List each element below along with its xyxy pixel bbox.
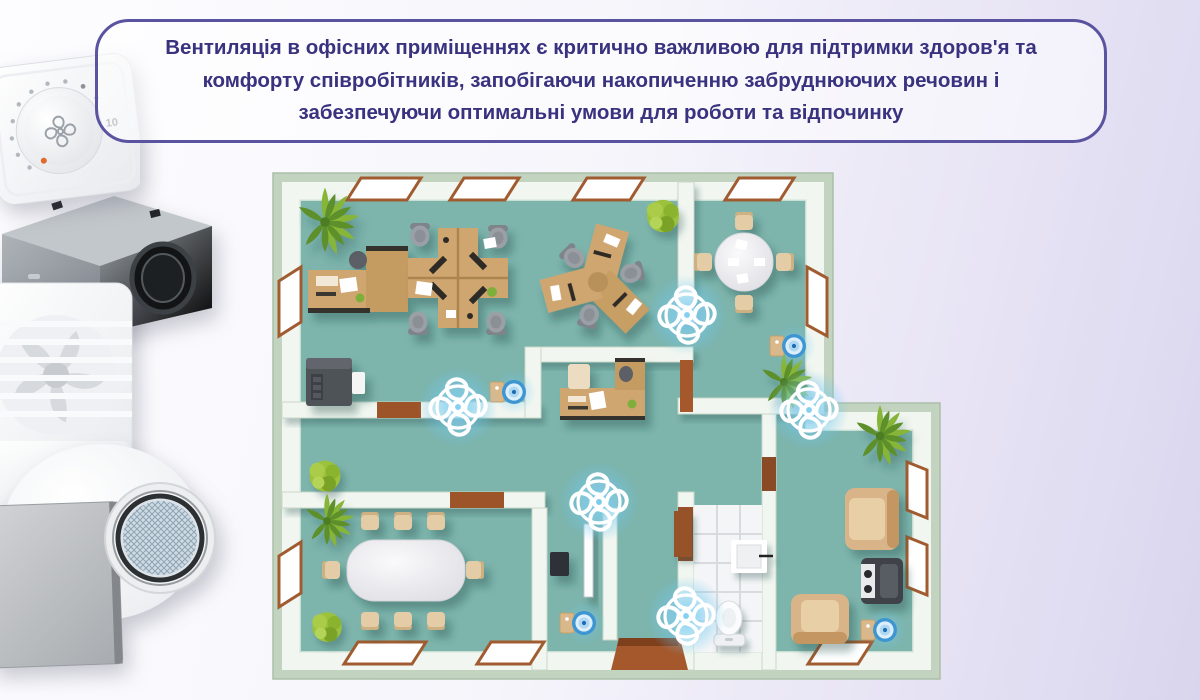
ventilation-info-banner: Вентиляція в офісних приміщеннях є крити… bbox=[95, 19, 1107, 143]
banner-line-3: забезпечуючи оптимальні умови для роботи… bbox=[98, 97, 1104, 130]
banner-line-1: Вентиляція в офісних приміщеннях є крити… bbox=[98, 32, 1104, 65]
ventilation-fan-icon bbox=[418, 367, 498, 447]
inline-duct-fan-image bbox=[0, 436, 225, 684]
armchair bbox=[845, 488, 899, 550]
desk-cluster-x bbox=[408, 223, 508, 335]
ventilation-fan-icon bbox=[646, 576, 726, 656]
banner-line-2: комфорту співробітників, запобігаючи нак… bbox=[98, 65, 1104, 98]
ventilation-fan-icon bbox=[647, 275, 727, 355]
bathroom-door bbox=[731, 540, 773, 573]
armchair bbox=[791, 594, 849, 644]
ventilation-fan-icon bbox=[769, 370, 849, 450]
coffee-machine bbox=[861, 558, 903, 604]
ventilation-fan-icon bbox=[559, 462, 639, 542]
office-floorplan bbox=[270, 170, 946, 684]
page: Вентиляція в офісних приміщеннях є крити… bbox=[0, 0, 1200, 700]
